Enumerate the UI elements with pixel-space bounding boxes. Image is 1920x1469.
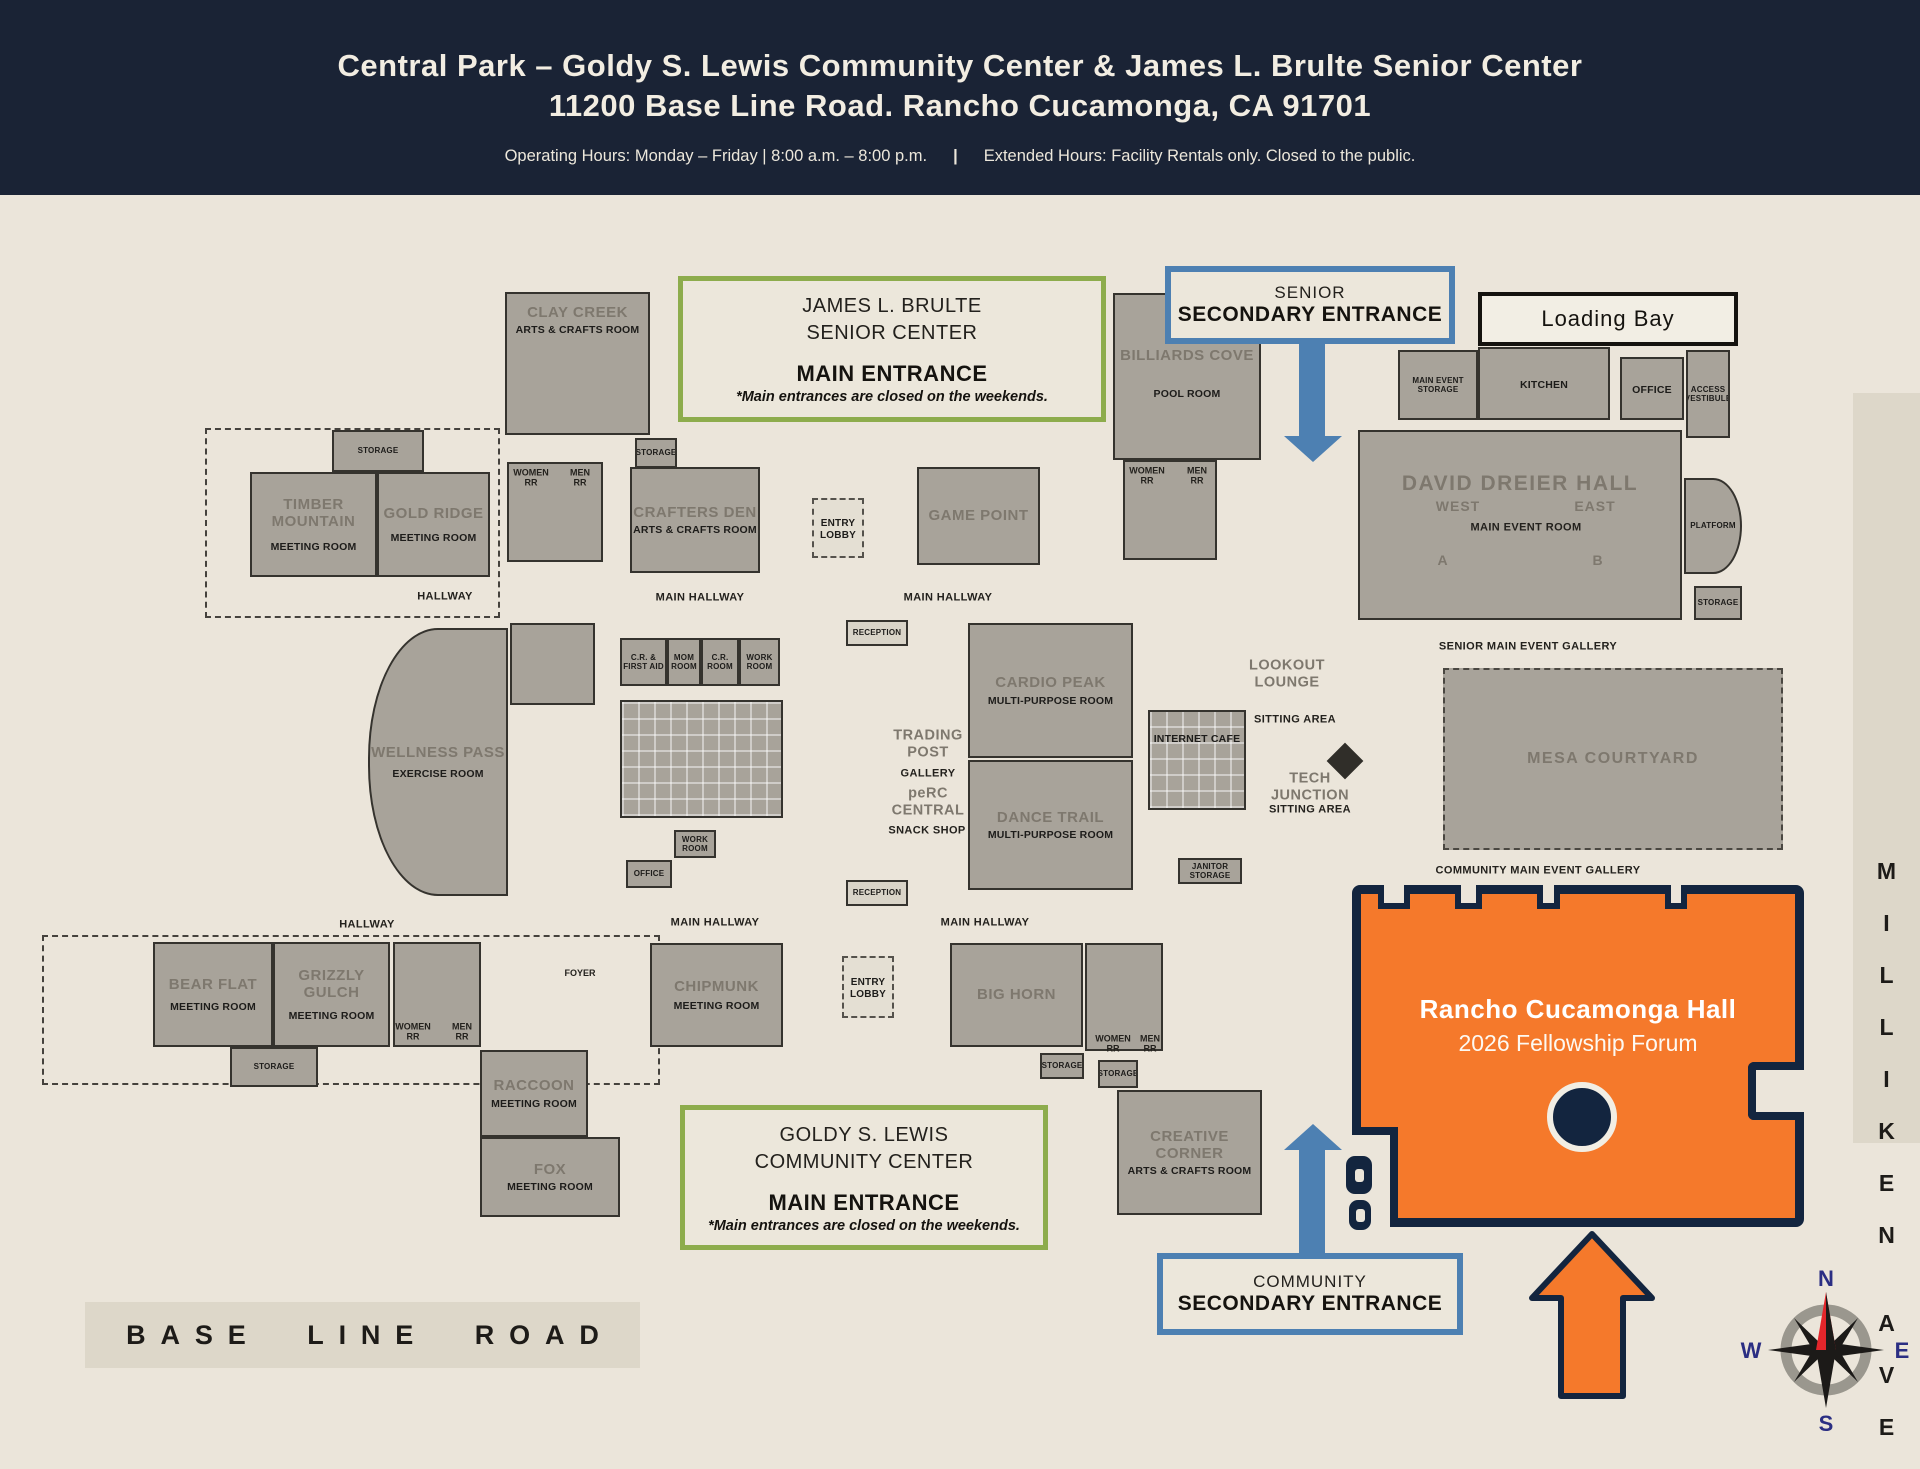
room-storage-4: STORAGE xyxy=(230,1047,318,1087)
room-sublabel: ENTRY LOBBY xyxy=(844,977,892,1000)
room-name: MESA COURTYARD xyxy=(1527,750,1699,768)
callout-note: *Main entrances are closed on the weeken… xyxy=(685,1218,1043,1234)
hall-notch xyxy=(1537,885,1560,909)
rancho-cucamonga-hall-highlight: Rancho Cucamonga Hall 2026 Fellowship Fo… xyxy=(1352,885,1804,1227)
hall-side-notch xyxy=(1748,1062,1804,1120)
room-office-2: OFFICE xyxy=(626,860,672,888)
room-sublabel: MEETING ROOM xyxy=(674,1000,760,1012)
room-access-vestibule: ACCESS VESTIBULE xyxy=(1686,350,1730,438)
room-name: BIG HORN xyxy=(977,986,1056,1003)
operating-hours-right: Extended Hours: Facility Rentals only. C… xyxy=(984,147,1416,166)
room-storage-5: STORAGE xyxy=(1040,1053,1084,1079)
map-label: EAST xyxy=(1574,498,1615,514)
room-mom-room: MOM ROOM xyxy=(667,638,701,686)
compass-south-label: S xyxy=(1819,1411,1834,1436)
callout-community-secondary-entrance: COMMUNITY SECONDARY ENTRANCE xyxy=(1157,1253,1463,1335)
room-dance-trail: DANCE TRAILMULTI-PURPOSE ROOM xyxy=(968,760,1133,890)
room-fox: FOXMEETING ROOM xyxy=(480,1137,620,1217)
map-label: WOMEN RR xyxy=(1090,1034,1136,1055)
map-label: SNACK SHOP xyxy=(888,825,965,838)
callout-line: SECONDARY ENTRANCE xyxy=(1171,303,1449,327)
room-entry-lobby-north: ENTRY LOBBY xyxy=(812,498,864,558)
room-storage-2: STORAGE xyxy=(635,438,677,468)
room-sublabel: RECEPTION xyxy=(853,628,901,637)
room-cubicle-area xyxy=(620,700,783,818)
street-letter: L xyxy=(1879,962,1893,989)
room-mesa-courtyard: MESA COURTYARD xyxy=(1443,668,1783,850)
callout-line: SENIOR CENTER xyxy=(683,320,1101,347)
door-marker xyxy=(1346,1156,1372,1194)
room-janitor-storage: JANITOR STORAGE xyxy=(1178,858,1242,884)
map-label: SITTING AREA xyxy=(1254,714,1336,727)
room-storage-1: STORAGE xyxy=(332,430,424,472)
room-sublabel: ARTS & CRAFTS ROOM xyxy=(1128,1165,1252,1177)
room-cr-first-aid: C.R. & FIRST AID xyxy=(620,638,667,686)
room-internet-cafe: INTERNET CAFE xyxy=(1148,710,1246,810)
callout-note: *Main entrances are closed on the weeken… xyxy=(683,389,1101,405)
room-name: CREATIVE CORNER xyxy=(1119,1128,1260,1163)
compass-rose-icon: N S W E xyxy=(1737,1258,1915,1436)
room-chipmunk: CHIPMUNKMEETING ROOM xyxy=(650,943,783,1047)
room-sublabel: MULTI-PURPOSE ROOM xyxy=(988,829,1113,841)
map-label: MAIN HALLWAY xyxy=(941,917,1030,930)
compass-east-label: E xyxy=(1895,1338,1910,1363)
street-letter: K xyxy=(1878,1118,1895,1145)
map-label: SITTING AREA xyxy=(1269,804,1351,817)
room-office-1: OFFICE xyxy=(1620,357,1684,420)
road-milliken: MILLIKEN AVE xyxy=(1853,393,1920,1143)
road-milliken-letters: MILLIKEN xyxy=(1853,858,1920,1249)
hall-notch xyxy=(1665,885,1687,909)
street-letter: N xyxy=(1878,1222,1895,1249)
room-sublabel: MEETING ROOM xyxy=(170,1001,256,1013)
door-marker xyxy=(1349,1200,1371,1230)
map-label: WOMEN RR xyxy=(390,1022,436,1043)
room-grizzly-gulch: GRIZZLY GULCHMEETING ROOM xyxy=(273,942,390,1047)
compass-west-label: W xyxy=(1741,1338,1762,1363)
map-label: SENIOR MAIN EVENT GALLERY xyxy=(1439,641,1617,654)
room-cr-room: C.R. ROOM xyxy=(701,638,739,686)
room-kitchen: KITCHEN xyxy=(1478,347,1610,420)
room-storage-3: STORAGE xyxy=(1694,586,1742,620)
hall-notch xyxy=(1378,885,1410,909)
room-name: BILLIARDS COVE xyxy=(1120,347,1254,364)
room-sublabel: OFFICE xyxy=(634,869,665,878)
room-sublabel: MOM ROOM xyxy=(669,653,699,671)
room-sublabel: WORK ROOM xyxy=(676,835,714,853)
room-sublabel: ACCESS VESTIBULE xyxy=(1686,385,1730,403)
hall-entrance-arrow-icon xyxy=(1520,1228,1665,1403)
map-label: MAIN EVENT ROOM xyxy=(1470,522,1581,535)
room-name: CHIPMUNK xyxy=(674,978,759,995)
room-gold-ridge: GOLD RIDGEMEETING ROOM xyxy=(377,472,490,577)
room-sublabel: KITCHEN xyxy=(1520,379,1568,391)
callout-line: JAMES L. BRULTE xyxy=(683,293,1101,320)
room-name: FOX xyxy=(534,1161,566,1178)
room-sublabel: STORAGE xyxy=(1098,1069,1138,1078)
room-sublabel: C.R. & FIRST AID xyxy=(622,653,665,671)
room-big-horn: BIG HORN xyxy=(950,943,1083,1047)
room-name: CARDIO PEAK xyxy=(995,674,1106,691)
callout-line: GOLDY S. LEWIS xyxy=(685,1122,1043,1149)
loading-bay-label: Loading Bay xyxy=(1482,306,1734,332)
room-sublabel: RECEPTION xyxy=(853,888,901,897)
road-base-line-label: BASE LINE ROAD xyxy=(111,1320,613,1351)
senior-entrance-arrow-shaft xyxy=(1299,344,1325,436)
room-sublabel: MEETING ROOM xyxy=(289,1010,375,1022)
room-sublabel: MEETING ROOM xyxy=(391,532,477,544)
room-creative-corner: CREATIVE CORNERARTS & CRAFTS ROOM xyxy=(1117,1090,1262,1215)
map-label: MAIN HALLWAY xyxy=(656,592,745,605)
map-label: MAIN HALLWAY xyxy=(671,917,760,930)
hall-name: Rancho Cucamonga Hall xyxy=(1361,994,1795,1025)
room-sublabel: WORK ROOM xyxy=(741,653,778,671)
room-name: GOLD RIDGE xyxy=(383,505,483,522)
callout-main-entrance-label: MAIN ENTRANCE xyxy=(685,1190,1043,1216)
callout-main-entrance-label: MAIN ENTRANCE xyxy=(683,361,1101,387)
room-storage-main-event: MAIN EVENT STORAGE xyxy=(1398,350,1478,420)
room-sitting-room xyxy=(510,623,595,705)
room-sublabel: EXERCISE ROOM xyxy=(392,768,483,780)
room-sublabel: STORAGE xyxy=(1698,598,1739,607)
callout-line: SENIOR xyxy=(1171,283,1449,303)
hours-divider: | xyxy=(953,147,958,166)
room-reception-1: RECEPTION xyxy=(846,620,908,646)
room-name: TIMBER MOUNTAIN xyxy=(252,496,375,531)
callout-community-main-entrance: GOLDY S. LEWIS COMMUNITY CENTER MAIN ENT… xyxy=(680,1105,1048,1250)
room-sublabel: ARTS & CRAFTS ROOM xyxy=(516,324,640,336)
room-sublabel: STORAGE xyxy=(1042,1061,1083,1070)
room-sublabel: ARTS & CRAFTS ROOM xyxy=(633,524,757,536)
header-banner: Central Park – Goldy S. Lewis Community … xyxy=(0,0,1920,195)
room-wellness-pass: WELLNESS PASSEXERCISE ROOM xyxy=(368,628,508,896)
room-platform: PLATFORM xyxy=(1684,478,1742,574)
facility-map-page: Central Park – Goldy S. Lewis Community … xyxy=(0,0,1920,1469)
callout-loading-bay: Loading Bay xyxy=(1478,292,1738,346)
room-name: DAVID DREIER HALL xyxy=(1402,472,1638,496)
map-label: WOMEN RR xyxy=(508,468,554,489)
room-bear-flat: BEAR FLATMEETING ROOM xyxy=(153,942,273,1047)
room-sublabel: ENTRY LOBBY xyxy=(814,518,862,541)
room-name: DANCE TRAIL xyxy=(997,809,1104,826)
room-name: CRAFTERS DEN xyxy=(633,504,757,521)
map-label: MAIN HALLWAY xyxy=(904,592,993,605)
senior-entrance-arrow-icon xyxy=(1284,436,1342,462)
hall-notch xyxy=(1455,885,1482,909)
map-label: COMMUNITY MAIN EVENT GALLERY xyxy=(1436,865,1641,878)
map-label: WOMEN RR xyxy=(1124,466,1170,487)
room-sublabel: MEETING ROOM xyxy=(491,1098,577,1110)
room-name: CLAY CREEK xyxy=(527,304,628,321)
community-entrance-arrow-icon xyxy=(1284,1124,1342,1150)
room-crafters-den: CRAFTERS DENARTS & CRAFTS ROOM xyxy=(630,467,760,573)
callout-line: SECONDARY ENTRANCE xyxy=(1163,1292,1457,1316)
room-sublabel: STORAGE xyxy=(254,1062,295,1071)
room-work-room-2: WORK ROOM xyxy=(674,830,716,858)
room-sublabel: MEETING ROOM xyxy=(271,541,357,553)
room-sublabel: JANITOR STORAGE xyxy=(1180,862,1240,880)
map-label: TRADING POST xyxy=(881,727,976,760)
street-letter: I xyxy=(1883,910,1889,937)
road-base-line: BASE LINE ROAD xyxy=(85,1302,640,1368)
room-name: WELLNESS PASS xyxy=(371,744,505,761)
street-letter: I xyxy=(1883,1066,1889,1093)
room-sublabel: INTERNET CAFE xyxy=(1154,733,1241,745)
room-clay-creek: CLAY CREEKARTS & CRAFTS ROOM xyxy=(505,292,650,435)
room-raccoon: RACCOONMEETING ROOM xyxy=(480,1050,588,1137)
operating-hours: Operating Hours: Monday – Friday | 8:00 … xyxy=(0,147,1920,166)
map-label: WEST xyxy=(1436,498,1480,514)
room-game-point: GAME POINT xyxy=(917,467,1040,565)
map-label: FOYER xyxy=(564,968,595,978)
room-name: RACCOON xyxy=(494,1077,575,1094)
room-sublabel: POOL ROOM xyxy=(1154,388,1221,400)
map-label: GALLERY xyxy=(901,768,956,781)
callout-senior-secondary-entrance: SENIOR SECONDARY ENTRANCE xyxy=(1165,266,1455,344)
operating-hours-left: Operating Hours: Monday – Friday | 8:00 … xyxy=(505,147,928,166)
room-sublabel: STORAGE xyxy=(636,448,677,457)
map-label: HALLWAY xyxy=(339,919,395,932)
hall-event: 2026 Fellowship Forum xyxy=(1361,1030,1795,1057)
map-label: peRC CENTRAL xyxy=(881,785,976,818)
map-label: B xyxy=(1592,552,1603,568)
room-sublabel: OFFICE xyxy=(1632,384,1672,396)
callout-line: COMMUNITY CENTER xyxy=(685,1149,1043,1176)
map-label: LOOKOUT LOUNGE xyxy=(1235,657,1340,690)
compass-north-label: N xyxy=(1818,1266,1834,1291)
room-sublabel: C.R. ROOM xyxy=(703,653,737,671)
map-label: A xyxy=(1437,552,1448,568)
room-name: GRIZZLY GULCH xyxy=(275,967,388,1002)
room-sublabel: MULTI-PURPOSE ROOM xyxy=(988,695,1113,707)
map-label: HALLWAY xyxy=(417,591,473,604)
page-title-line1: Central Park – Goldy S. Lewis Community … xyxy=(0,46,1920,86)
room-sublabel: STORAGE xyxy=(358,446,399,455)
map-label: MEN RR xyxy=(563,468,597,489)
page-title-line2: 11200 Base Line Road. Rancho Cucamonga, … xyxy=(0,86,1920,126)
room-work-room-1: WORK ROOM xyxy=(739,638,780,686)
room-storage-6: STORAGE xyxy=(1098,1060,1138,1088)
room-reception-2: RECEPTION xyxy=(846,880,908,906)
room-sublabel: MEETING ROOM xyxy=(507,1181,593,1193)
street-letter: E xyxy=(1879,1170,1894,1197)
room-timber-mountain: TIMBER MOUNTAINMEETING ROOM xyxy=(250,472,377,577)
room-sublabel: MAIN EVENT STORAGE xyxy=(1400,376,1476,394)
map-label: MEN RR xyxy=(445,1022,479,1043)
room-sublabel: PLATFORM xyxy=(1690,521,1735,530)
community-entrance-arrow-shaft xyxy=(1299,1150,1325,1253)
room-name: BEAR FLAT xyxy=(169,976,257,993)
callout-line: COMMUNITY xyxy=(1163,1272,1457,1292)
room-cardio-peak: CARDIO PEAKMULTI-PURPOSE ROOM xyxy=(968,623,1133,758)
street-letter: L xyxy=(1879,1014,1893,1041)
map-label: MEN RR xyxy=(1180,466,1214,487)
map-label: MEN RR xyxy=(1133,1034,1167,1055)
hall-location-dot xyxy=(1547,1082,1617,1152)
street-letter: M xyxy=(1877,858,1896,885)
room-name: GAME POINT xyxy=(928,507,1028,524)
room-entry-lobby-south: ENTRY LOBBY xyxy=(842,956,894,1018)
callout-senior-main-entrance: JAMES L. BRULTE SENIOR CENTER MAIN ENTRA… xyxy=(678,276,1106,422)
